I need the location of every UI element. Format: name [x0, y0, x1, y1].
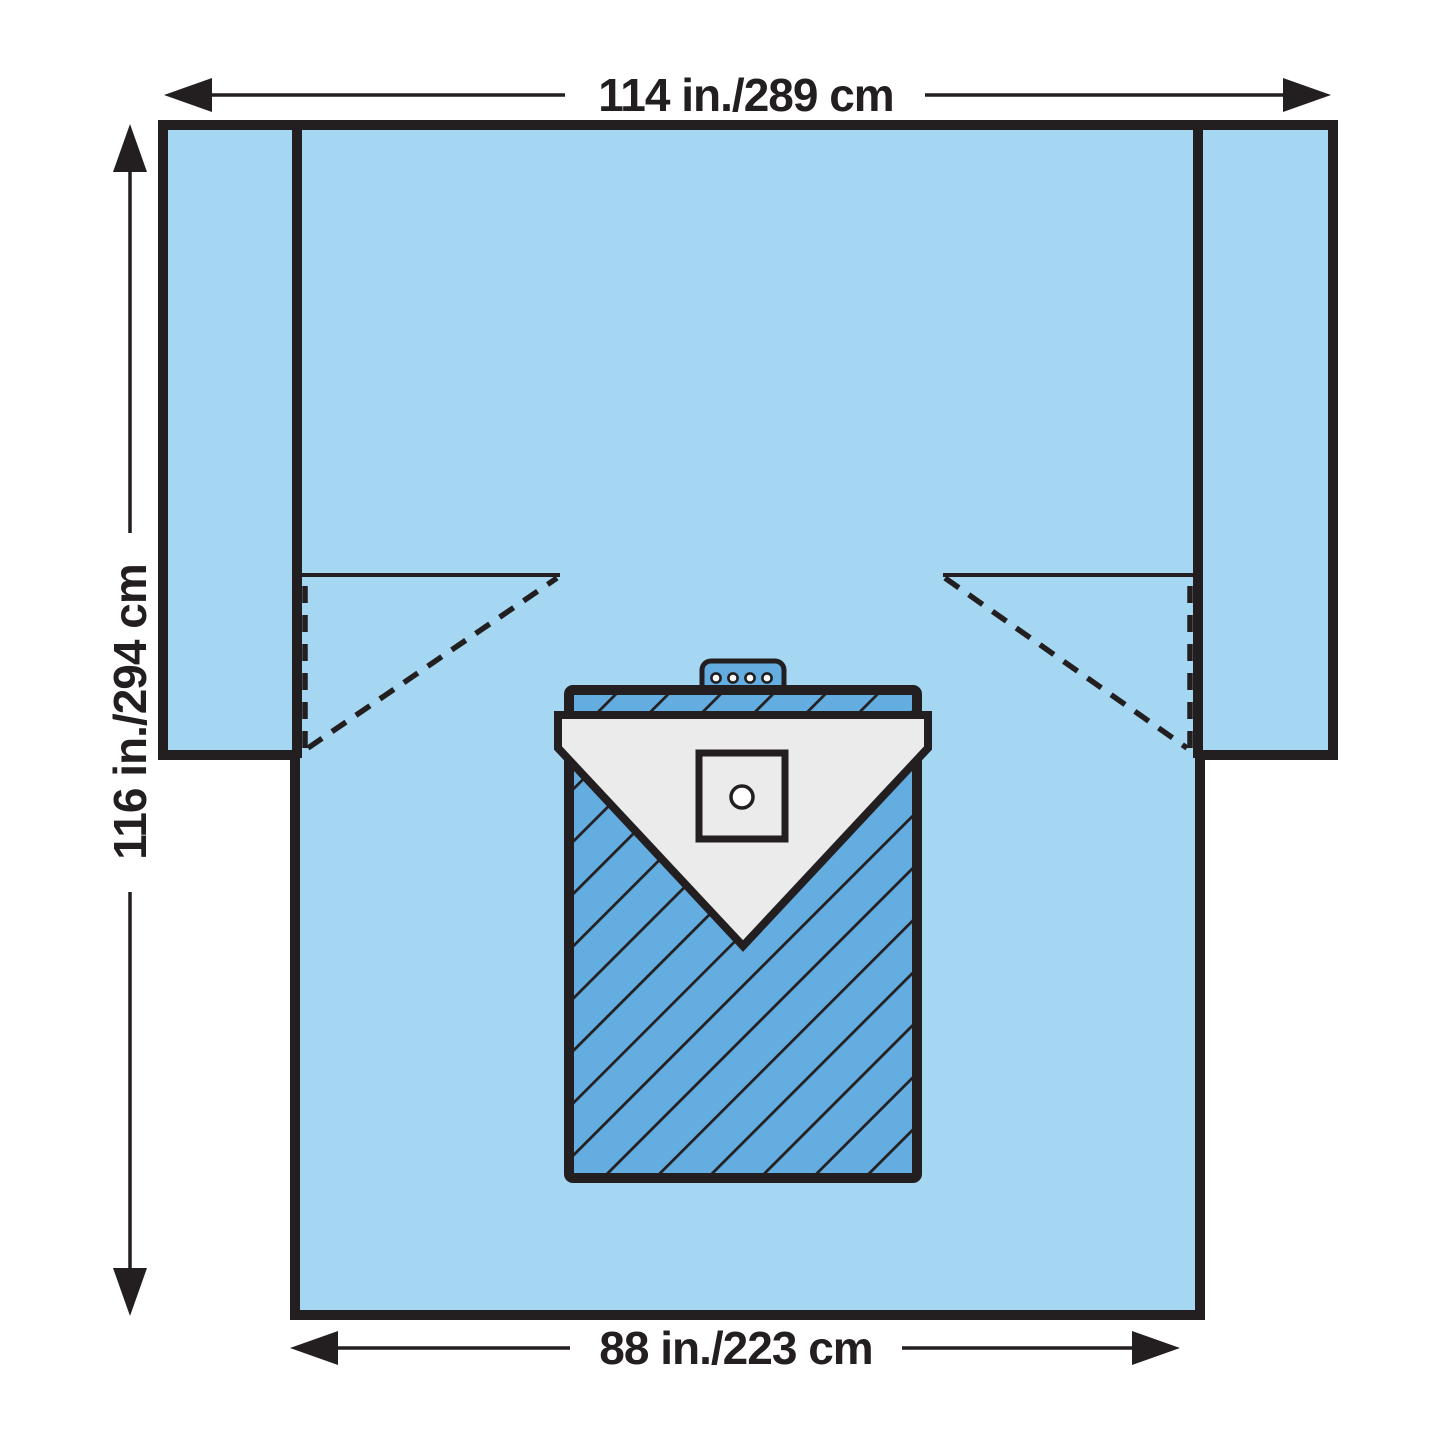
arrow-left-icon [164, 78, 212, 112]
tab-hole-icon [711, 673, 720, 682]
bottom-width-arrow: 88 in./223 cm [290, 1322, 1180, 1374]
tab-hole-icon [745, 673, 754, 682]
fenestration-hole-icon [731, 786, 753, 808]
side-height-label: 116 in./294 cm [104, 564, 156, 859]
arrow-right-icon [1132, 1331, 1180, 1365]
bottom-width-label: 88 in./223 cm [599, 1322, 872, 1374]
drape-diagram: 114 in./289 cm 116 in./294 cm 88 in./223… [0, 0, 1445, 1445]
top-width-arrow: 114 in./289 cm [164, 69, 1331, 121]
left-height-arrow: 116 in./294 cm [104, 124, 156, 1316]
arrow-right-icon [1283, 78, 1331, 112]
tab-hole-icon [762, 673, 771, 682]
tab-hole-icon [728, 673, 737, 682]
arrow-up-icon [113, 124, 147, 172]
arrow-left-icon [290, 1331, 338, 1365]
diagram-canvas: 114 in./289 cm 116 in./294 cm 88 in./223… [0, 0, 1445, 1445]
arrow-down-icon [113, 1268, 147, 1316]
top-width-label: 114 in./289 cm [598, 69, 893, 121]
